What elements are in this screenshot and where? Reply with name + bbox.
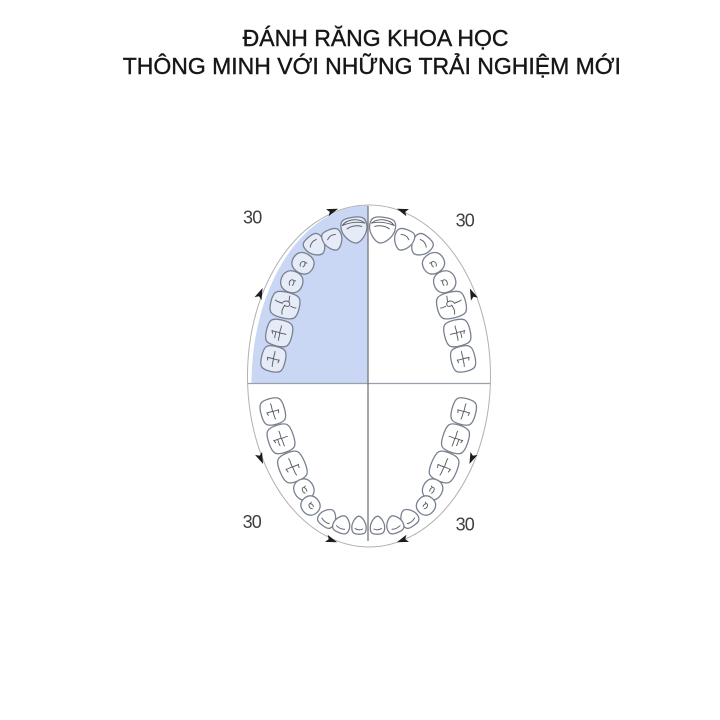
svg-text:30: 30 (456, 515, 475, 535)
svg-text:30: 30 (243, 208, 262, 228)
svg-text:30: 30 (456, 211, 475, 231)
svg-text:30: 30 (243, 512, 262, 532)
svg-text:ĐÁNH RĂNG KHOA HỌC: ĐÁNH RĂNG KHOA HỌC (243, 25, 509, 51)
svg-text:THÔNG MINH VỚI NHỮNG TRẢI NGHI: THÔNG MINH VỚI NHỮNG TRẢI NGHIỆM MỚI (123, 51, 621, 79)
